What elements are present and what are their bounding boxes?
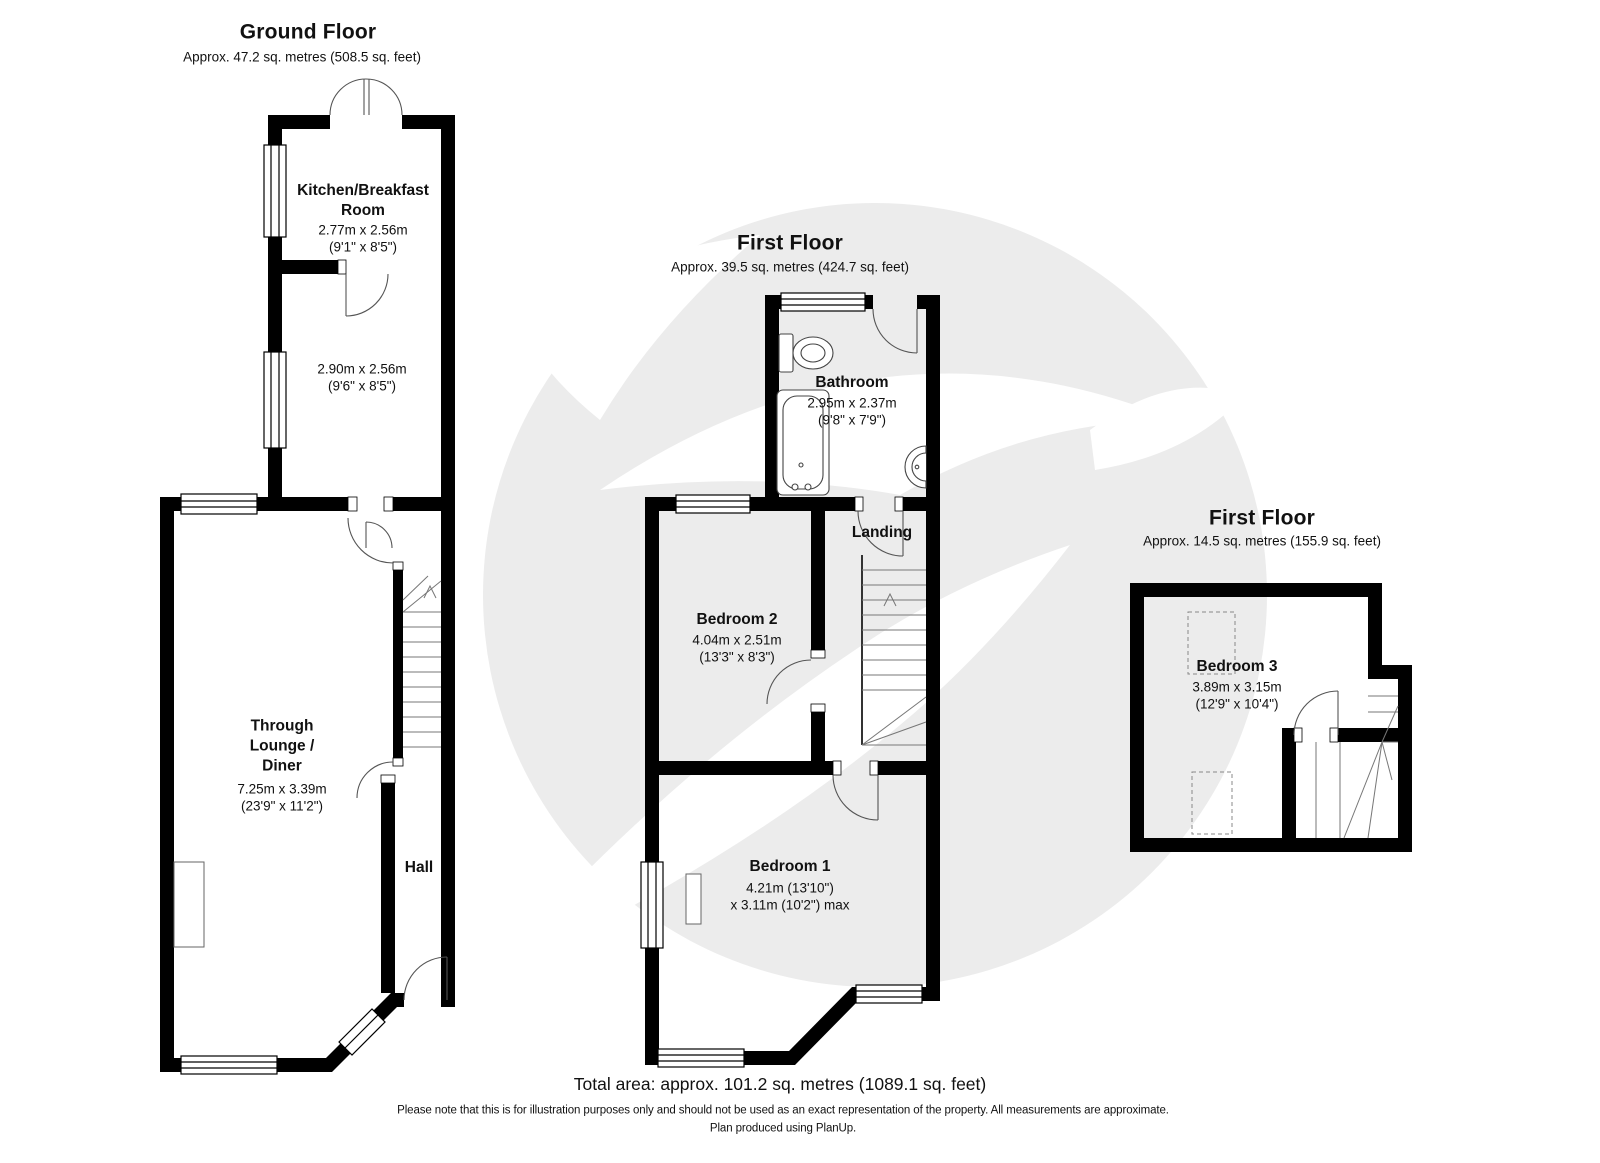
bedroom1-label: Bedroom 1 <box>750 857 831 877</box>
bedroom1-dims: 4.21m (13'10") x 3.11m (10'2") max <box>731 880 850 915</box>
landing-label: Landing <box>852 523 912 543</box>
floorplan-drawing <box>0 0 1600 1163</box>
bedroom1-bay-window <box>856 985 922 1003</box>
bedroom2-window <box>676 495 750 513</box>
bedroom2-label: Bedroom 2 <box>697 610 778 630</box>
bedroom1-bottom-window <box>658 1049 744 1067</box>
ground-floor-subtitle: Approx. 47.2 sq. metres (508.5 sq. feet) <box>183 48 421 65</box>
bedroom3-label: Bedroom 3 <box>1197 657 1278 677</box>
produced-by-line: Plan produced using PlanUp. <box>710 1122 856 1137</box>
first-floor-title: First Floor <box>737 231 843 258</box>
kitchen-label: Kitchen/Breakfast Room <box>297 181 429 221</box>
bedroom3-dims: 3.89m x 3.15m (12'9" x 10'4") <box>1192 679 1281 714</box>
ground-floor-title: Ground Floor <box>240 20 377 47</box>
hall-label: Hall <box>405 858 433 878</box>
first-floor-subtitle: Approx. 39.5 sq. metres (424.7 sq. feet) <box>671 258 909 275</box>
toilet-icon <box>779 334 833 372</box>
kitchen-dims: 2.77m x 2.56m (9'1" x 8'5") <box>318 222 407 257</box>
lounge-chimney-breast <box>174 862 204 947</box>
rear-room-dims: 2.90m x 2.56m (9'6" x 8'5") <box>317 361 406 396</box>
bedroom1-chimney-breast <box>686 874 701 924</box>
bathroom-label: Bathroom <box>815 373 888 393</box>
kitchen-window-upper <box>264 145 286 237</box>
bedroom1-side-window <box>641 862 663 948</box>
total-area-line: Total area: approx. 101.2 sq. metres (10… <box>574 1073 986 1095</box>
stairhall-door <box>348 518 393 563</box>
kitchen-window-lower <box>264 352 286 448</box>
stairs-up-arrow <box>424 586 436 598</box>
kitchen-internal-door <box>346 274 388 316</box>
second-floor-jambs <box>1294 728 1338 742</box>
bedroom2-dims: 4.04m x 2.51m (13'3" x 8'3") <box>692 632 781 667</box>
floorplan-page: Ground Floor Approx. 47.2 sq. metres (50… <box>0 0 1600 1163</box>
bathroom-dims: 2.95m x 2.37m (9'8" x 7'9") <box>807 395 896 430</box>
lounge-label: Through Lounge / Diner <box>250 716 315 775</box>
ground-floor-plan <box>160 79 455 1074</box>
second-floor-subtitle: Approx. 14.5 sq. metres (155.9 sq. feet) <box>1143 532 1381 549</box>
second-floor-title: First Floor <box>1209 506 1315 533</box>
bathroom-window <box>781 293 865 311</box>
disclaimer-line: Please note that this is for illustratio… <box>397 1104 1169 1119</box>
bay-window-bottom <box>181 1056 277 1074</box>
lounge-front-window <box>181 494 257 514</box>
lounge-dims: 7.25m x 3.39m (23'9" x 11'2") <box>237 781 326 816</box>
bay-window-diagonal <box>339 1009 385 1055</box>
french-doors <box>330 79 402 115</box>
front-door <box>404 957 447 1000</box>
ground-floor-windows <box>181 145 385 1074</box>
second-floor-stairs <box>1316 696 1398 838</box>
ground-floor-stairs <box>403 576 441 747</box>
